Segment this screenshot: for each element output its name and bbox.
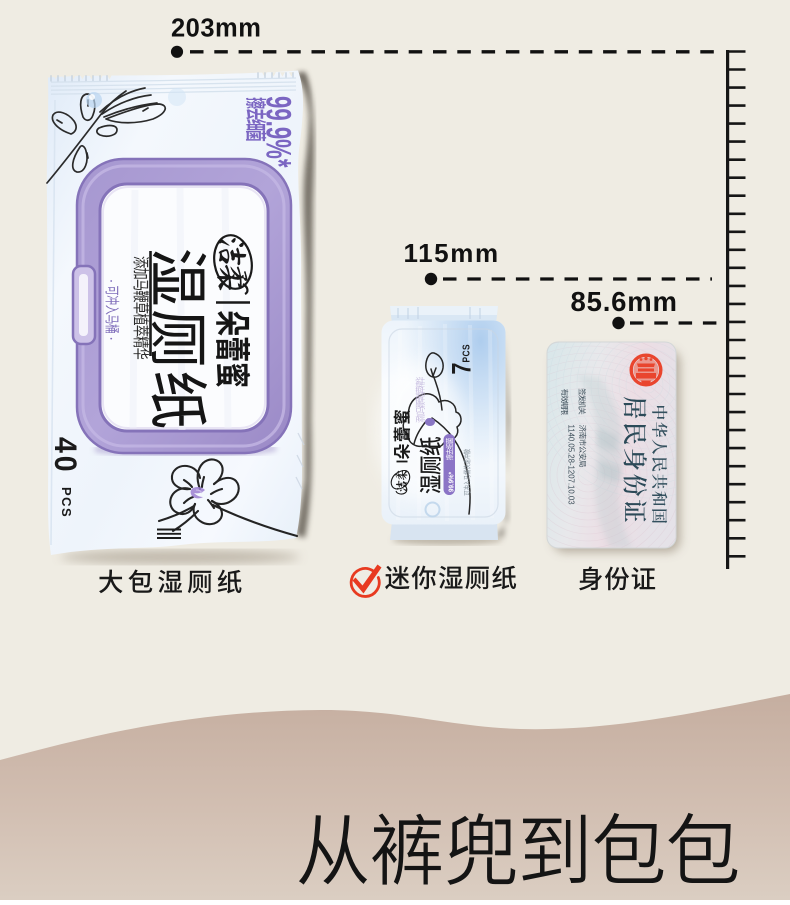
svg-text:7: 7 — [447, 362, 477, 374]
svg-text:115mm: 115mm — [404, 238, 500, 268]
svg-text:40: 40 — [48, 437, 83, 474]
svg-text:99.9%*: 99.9%* — [448, 472, 456, 492]
svg-text:PCS: PCS — [59, 487, 74, 518]
svg-text:PCS: PCS — [461, 344, 473, 362]
svg-text:85.6mm: 85.6mm — [571, 286, 678, 317]
svg-text:203mm: 203mm — [171, 15, 261, 43]
svg-text:1140.05.28-1207.10.03: 1140.05.28-1207.10.03 — [567, 425, 576, 505]
